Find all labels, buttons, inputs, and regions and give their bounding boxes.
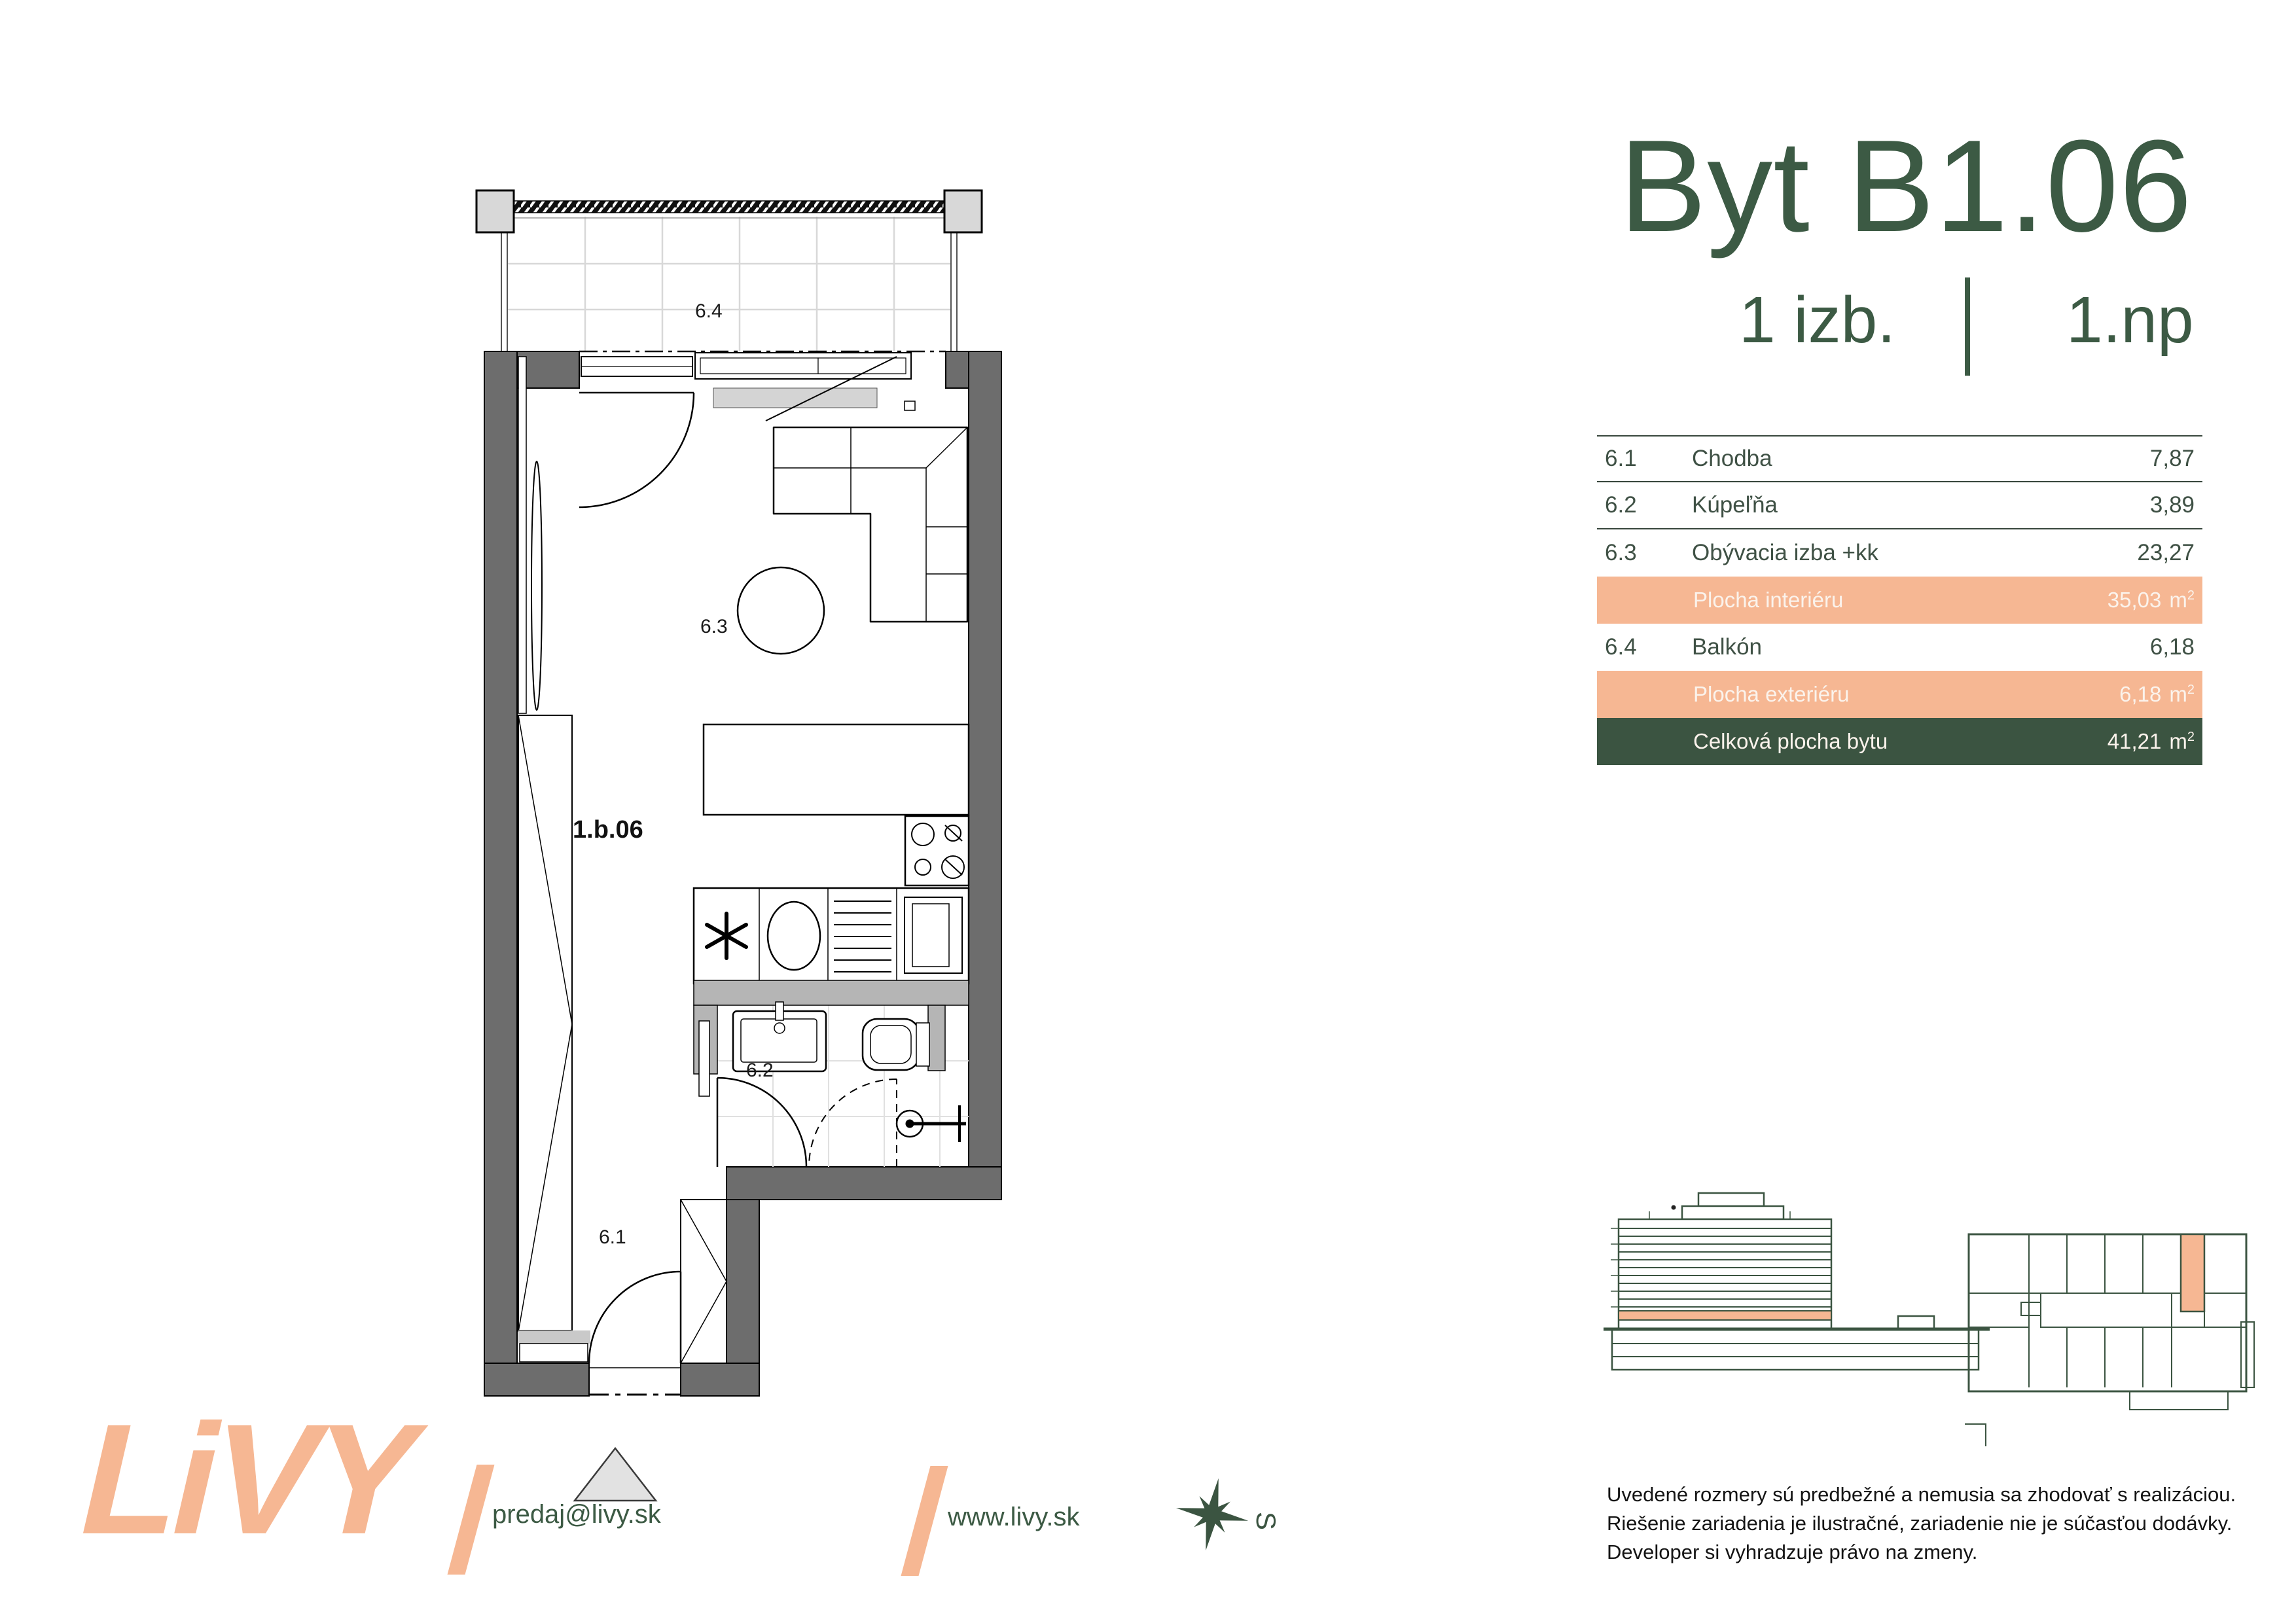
room-name: Chodba (1692, 446, 2150, 472)
compass-south-label: S (1251, 1512, 1282, 1530)
room-area: 6,18 (2150, 634, 2195, 660)
rooms-count: 1 izb. (1739, 283, 1895, 358)
total-area-band: Celková plocha bytu 41,21m2 (1597, 718, 2202, 765)
exterior-area-band: Plocha exteriéru 6,18m2 (1597, 671, 2202, 718)
floor-number: 1.np (2066, 283, 2194, 358)
label-living: 6.3 (700, 616, 728, 637)
area-table: 6.1 Chodba 7,87 6.2 Kúpeľňa 3,89 6.3 Obý… (1597, 435, 2202, 765)
shower-door (809, 1079, 897, 1167)
balcony-railing (514, 201, 944, 213)
label-hall: 6.1 (599, 1226, 626, 1248)
label-balcony: 6.4 (695, 300, 723, 322)
band-value: 35,03m2 (2108, 588, 2195, 613)
site-plan (1964, 1230, 2258, 1453)
towel-radiator (699, 1021, 709, 1096)
room-number: 6.1 (1597, 446, 1692, 472)
room-name: Obývacia izba +kk (1692, 540, 2137, 566)
entrance-door (589, 1272, 681, 1395)
highlighted-unit (2181, 1234, 2204, 1311)
label-bath: 6.2 (746, 1060, 774, 1081)
bathroom-door (717, 1078, 806, 1167)
disclaimer-line: Uvedené rozmery sú predbežné a nemusia s… (1607, 1480, 2294, 1509)
disclaimer-line: Developer si vyhradzuje právo na zmeny. (1607, 1538, 2294, 1567)
table-row: 6.3 Obývacia izba +kk 23,27 (1597, 529, 2202, 577)
contact-email[interactable]: predaj@livy.sk (492, 1500, 661, 1529)
disclaimer-line: Riešenie zariadenia je ilustračné, zaria… (1607, 1509, 2294, 1538)
kitchen (694, 724, 969, 984)
band-label: Plocha interiéru (1693, 588, 1843, 613)
hall-wardrobe-right (681, 1200, 726, 1363)
toilet-tank (916, 1023, 929, 1066)
band-label: Celková plocha bytu (1693, 729, 1888, 754)
balcony-door (579, 393, 694, 507)
label-unit: 1.b.06 (573, 816, 643, 844)
room-area: 7,87 (2150, 446, 2195, 472)
round-table (738, 567, 824, 654)
band-label: Plocha exteriéru (1693, 682, 1849, 707)
disclaimer: Uvedené rozmery sú predbežné a nemusia s… (1607, 1480, 2294, 1567)
faucet (776, 1002, 783, 1020)
balcony-post-right (944, 190, 982, 232)
room-number: 6.4 (1597, 634, 1692, 660)
bathroom: 6.2 (694, 980, 969, 1167)
balcony: 6.4 (476, 190, 982, 351)
room-area: 23,27 (2137, 540, 2195, 566)
highlighted-floor (1619, 1311, 1831, 1320)
room-name: Balkón (1692, 634, 2150, 660)
table-row: 6.1 Chodba 7,87 (1597, 435, 2202, 482)
page-title: Byt B1.06 (1619, 121, 2193, 252)
building-elevation (1600, 1188, 1993, 1450)
kitchen-island (704, 724, 969, 815)
entrance-arrow-icon (575, 1448, 656, 1501)
table-row: 6.2 Kúpeľňa 3,89 (1597, 482, 2202, 529)
compass: S (1172, 1471, 1289, 1563)
band-value: 6,18m2 (2119, 682, 2195, 707)
subtitle-divider (1965, 277, 1970, 376)
website-link[interactable]: www.livy.sk (948, 1503, 1079, 1532)
window-strip (581, 353, 915, 421)
interior-area-band: Plocha interiéru 35,03m2 (1597, 577, 2202, 624)
room-name: Kúpeľňa (1692, 492, 2150, 518)
room-area: 3,89 (2150, 492, 2195, 518)
table-row: 6.4 Balkón 6,18 (1597, 624, 2202, 671)
shower-head (897, 1105, 966, 1142)
band-value: 41,21m2 (2108, 729, 2195, 754)
floor-plan: 6.4 (439, 160, 1014, 1508)
room-number: 6.2 (1597, 492, 1692, 518)
room-number: 6.3 (1597, 540, 1692, 566)
livy-logo: LiVY (67, 1400, 431, 1558)
balcony-post-left (476, 190, 514, 232)
